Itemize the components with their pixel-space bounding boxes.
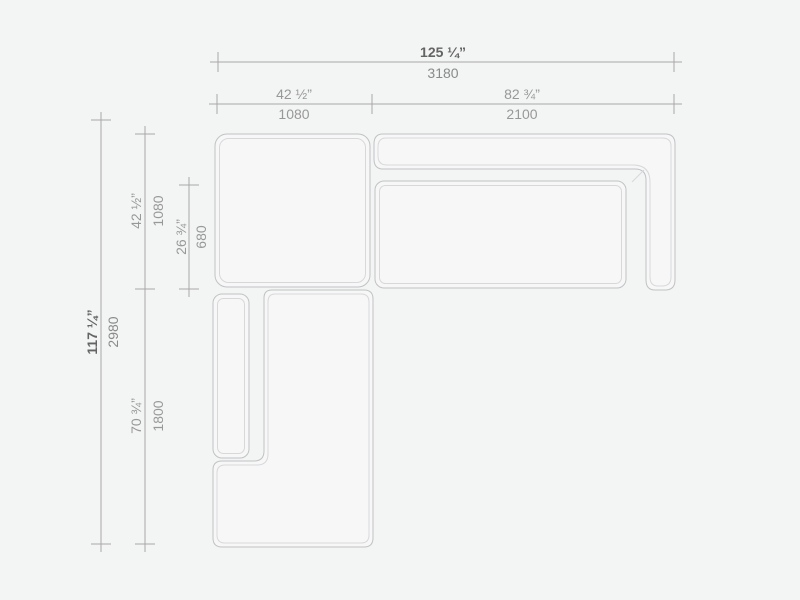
- bottom-chaise-module: [213, 290, 373, 547]
- module-widths-dimension: 42 ½” 1080 82 ¾” 2100: [209, 86, 682, 122]
- overall-width-inches-label: 125 ¼”: [420, 44, 466, 60]
- overall-depth-inches-label: 117 ¼”: [84, 309, 100, 354]
- right-sofa-module: [374, 134, 675, 290]
- overall-width-dimension: 125 ¼” 3180: [210, 44, 682, 81]
- seat-depth-dimension: 26 ¾” 680: [173, 177, 209, 297]
- chaise-backrest-outline: [213, 294, 249, 458]
- seat-depth-inches-label: 26 ¾”: [173, 219, 189, 255]
- chaise-length-mm-label: 1800: [150, 400, 166, 431]
- overall-width-mm-label: 3180: [427, 65, 458, 81]
- left-module-width-inches-label: 42 ½”: [276, 86, 312, 102]
- left-module-depth-mm-label: 1080: [150, 195, 166, 226]
- overall-depth-dimension: 117 ¼” 2980: [84, 112, 121, 552]
- sofa-dimension-drawing: 125 ¼” 3180 42 ½” 1080 82 ¾” 2100 117 ¼”…: [0, 0, 800, 600]
- right-module-width-mm-label: 2100: [506, 106, 537, 122]
- overall-depth-mm-label: 2980: [105, 316, 121, 347]
- chaise-length-inches-label: 70 ¾”: [128, 398, 144, 434]
- left-module-width-mm-label: 1080: [278, 106, 309, 122]
- right-module-width-inches-label: 82 ¾”: [504, 86, 540, 102]
- drawing-svg: 125 ¼” 3180 42 ½” 1080 82 ¾” 2100 117 ¼”…: [0, 0, 800, 600]
- seat-depth-mm-label: 680: [193, 225, 209, 249]
- left-module-depth-inches-label: 42 ½”: [128, 193, 144, 229]
- right-module-seat-outline: [375, 181, 626, 288]
- left-module-depth-dimension: 42 ½” 1080 70 ¾” 1800: [128, 126, 166, 552]
- left-square-module: [215, 134, 370, 287]
- left-module-outline: [215, 134, 370, 287]
- corner-miter-seam: [632, 170, 644, 182]
